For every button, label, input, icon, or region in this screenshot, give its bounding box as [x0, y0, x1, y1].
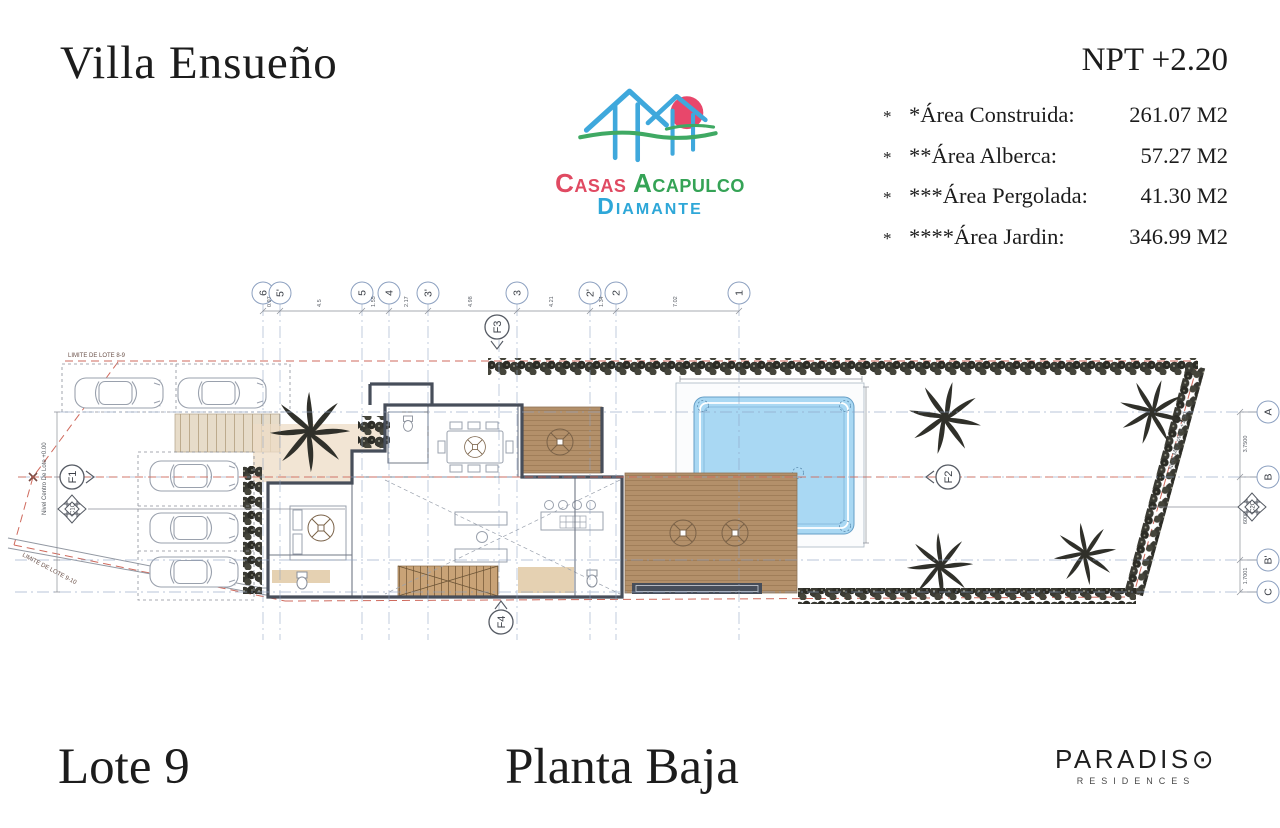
area-label: ***Área Pergolada:: [909, 183, 1088, 209]
svg-text:4.98: 4.98: [468, 296, 474, 307]
svg-text:1.34: 1.34: [599, 296, 605, 307]
casas-acapulco-logo: Casas Acapulco Diamante: [548, 84, 752, 217]
grid-col-label: 1: [734, 290, 746, 296]
svg-text:2.17: 2.17: [404, 296, 410, 307]
grid-col-label: 2: [611, 290, 623, 296]
svg-text:3.7500: 3.7500: [1243, 436, 1249, 453]
npt-level: NPT +2.20: [1082, 42, 1228, 79]
svg-text:1.55: 1.55: [371, 296, 377, 307]
svg-text:1.7001: 1.7001: [1243, 568, 1249, 585]
lot-label: Lote 9: [58, 738, 190, 796]
limite-8-9-label: LIMITE DE LOTE 8-9: [68, 353, 126, 359]
grid-col-label: 5': [275, 289, 287, 297]
area-row: * **Área Alberca: 57.27 M2: [883, 143, 1228, 184]
area-row: * *Área Construida: 261.07 M2: [883, 102, 1228, 143]
grid-col-label: 3: [512, 290, 524, 296]
car: [75, 378, 163, 408]
area-row: * ****Área Jardin: 346.99 M2: [883, 224, 1228, 265]
svg-text:0.97: 0.97: [267, 296, 273, 307]
house-logo-icon: [575, 84, 725, 166]
bullet-star: *: [883, 229, 909, 249]
paradiso-wordmark: PARADIS: [1055, 744, 1192, 774]
grid-col-label: 5: [357, 290, 369, 296]
area-value: 346.99 M2: [1129, 224, 1228, 250]
sheet: 6 5' 5 4 3' 3 2' 2 1 0.97 4.5 1.55 2.17 …: [0, 0, 1280, 828]
area-label: *Área Construida:: [909, 102, 1075, 128]
grid-row-label: B: [1263, 473, 1275, 480]
area-summary: * *Área Construida: 261.07 M2 * **Área A…: [883, 102, 1228, 264]
logo-diamante: Diamante: [548, 195, 752, 217]
section-f2: F2: [943, 471, 955, 484]
bullet-star: *: [883, 107, 909, 127]
section-marker-c1c: C1C: [58, 495, 86, 523]
limite-9-10-label: LIMITE DE LOTE 9-10: [21, 552, 78, 586]
area-label: **Área Alberca:: [909, 143, 1057, 169]
section-f1: F1: [67, 471, 79, 484]
area-value: 261.07 M2: [1129, 102, 1228, 128]
grid-col-label: 3': [423, 289, 435, 297]
paradiso-logo: PARADIS⊙ RESIDENCES: [1036, 744, 1236, 786]
svg-text:C1C: C1C: [71, 502, 77, 515]
page-title: Villa Ensueño: [60, 36, 338, 90]
area-value: 57.27 M2: [1140, 143, 1228, 169]
grid-row-label: C: [1263, 588, 1275, 596]
svg-text:4.21: 4.21: [549, 296, 555, 307]
paradiso-o-icon: ⊙: [1192, 744, 1217, 774]
nivel-left-label: Nivel Centro De Lote +0.00: [42, 442, 48, 515]
svg-text:C2C: C2C: [1251, 500, 1257, 513]
svg-text:7.02: 7.02: [673, 296, 679, 307]
grid-col-label: 2': [585, 289, 597, 297]
area-value: 41.30 M2: [1140, 183, 1228, 209]
area-row: * ***Área Pergolada: 41.30 M2: [883, 183, 1228, 224]
grid-row-label: B': [1263, 555, 1275, 564]
grid-col-label: 6: [258, 290, 270, 296]
paradiso-residences: RESIDENCES: [1036, 776, 1236, 786]
area-label: ****Área Jardin:: [909, 224, 1065, 250]
grid-col-label: 4: [384, 290, 396, 296]
floor-label: Planta Baja: [505, 738, 739, 796]
bullet-star: *: [883, 148, 909, 168]
bullet-star: *: [883, 188, 909, 208]
section-f3: F3: [492, 321, 504, 334]
deck-main: [625, 473, 797, 594]
grid-row-label: A: [1263, 408, 1275, 415]
svg-text:4.5: 4.5: [317, 299, 323, 307]
section-f4: F4: [496, 616, 508, 629]
